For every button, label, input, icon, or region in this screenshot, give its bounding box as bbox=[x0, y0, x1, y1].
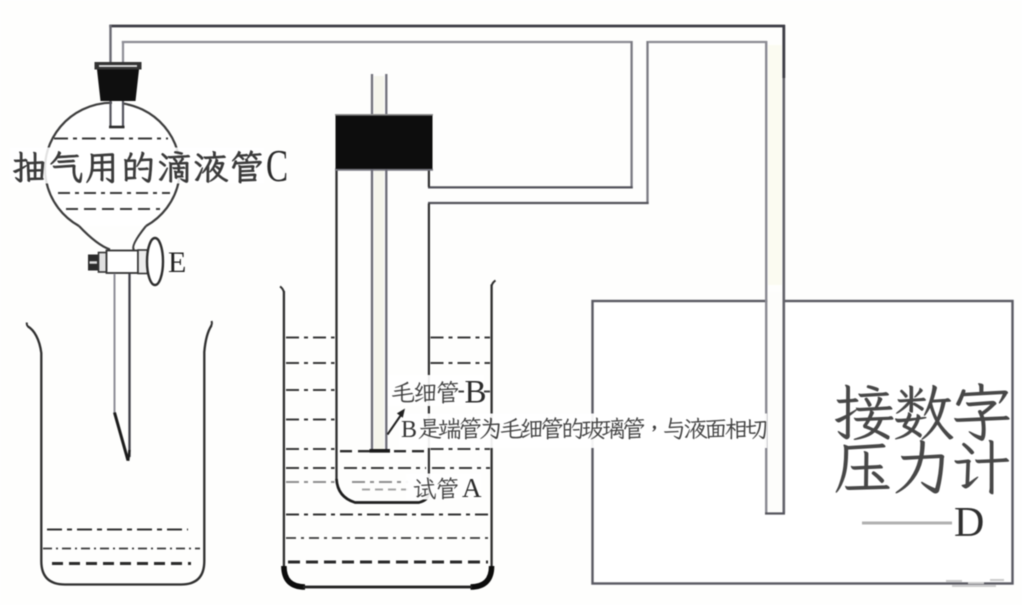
svg-text:B: B bbox=[465, 375, 487, 411]
svg-text:C: C bbox=[266, 140, 288, 192]
svg-text:D: D bbox=[954, 500, 984, 546]
svg-text:A: A bbox=[462, 473, 482, 503]
svg-text:E: E bbox=[168, 246, 186, 279]
svg-text:B: B bbox=[401, 417, 417, 443]
